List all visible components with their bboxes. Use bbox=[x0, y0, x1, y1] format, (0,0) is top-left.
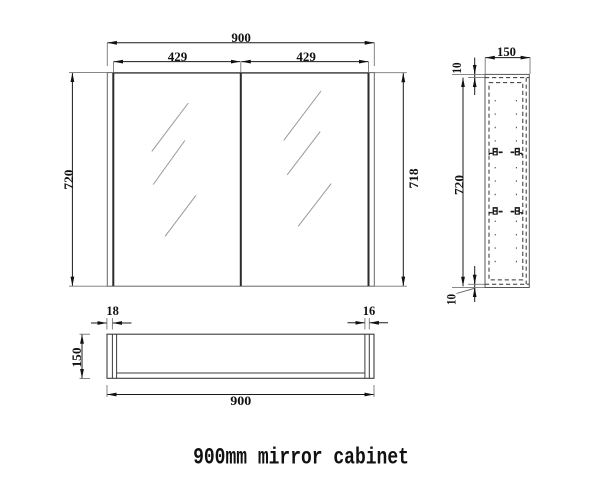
svg-text:150: 150 bbox=[69, 348, 84, 368]
svg-text:150: 150 bbox=[497, 45, 516, 59]
svg-text:718: 718 bbox=[406, 168, 421, 189]
svg-text:720: 720 bbox=[61, 170, 76, 190]
svg-text:16: 16 bbox=[363, 304, 376, 318]
svg-text:18: 18 bbox=[106, 304, 119, 318]
svg-text:900: 900 bbox=[231, 31, 251, 45]
svg-text:429: 429 bbox=[296, 50, 316, 64]
svg-text:900mm mirror cabinet: 900mm mirror cabinet bbox=[193, 445, 409, 471]
svg-text:900: 900 bbox=[230, 394, 251, 408]
svg-text:720: 720 bbox=[451, 175, 466, 195]
svg-text:10: 10 bbox=[450, 63, 464, 74]
svg-text:10: 10 bbox=[444, 294, 458, 305]
svg-text:429: 429 bbox=[168, 50, 188, 64]
